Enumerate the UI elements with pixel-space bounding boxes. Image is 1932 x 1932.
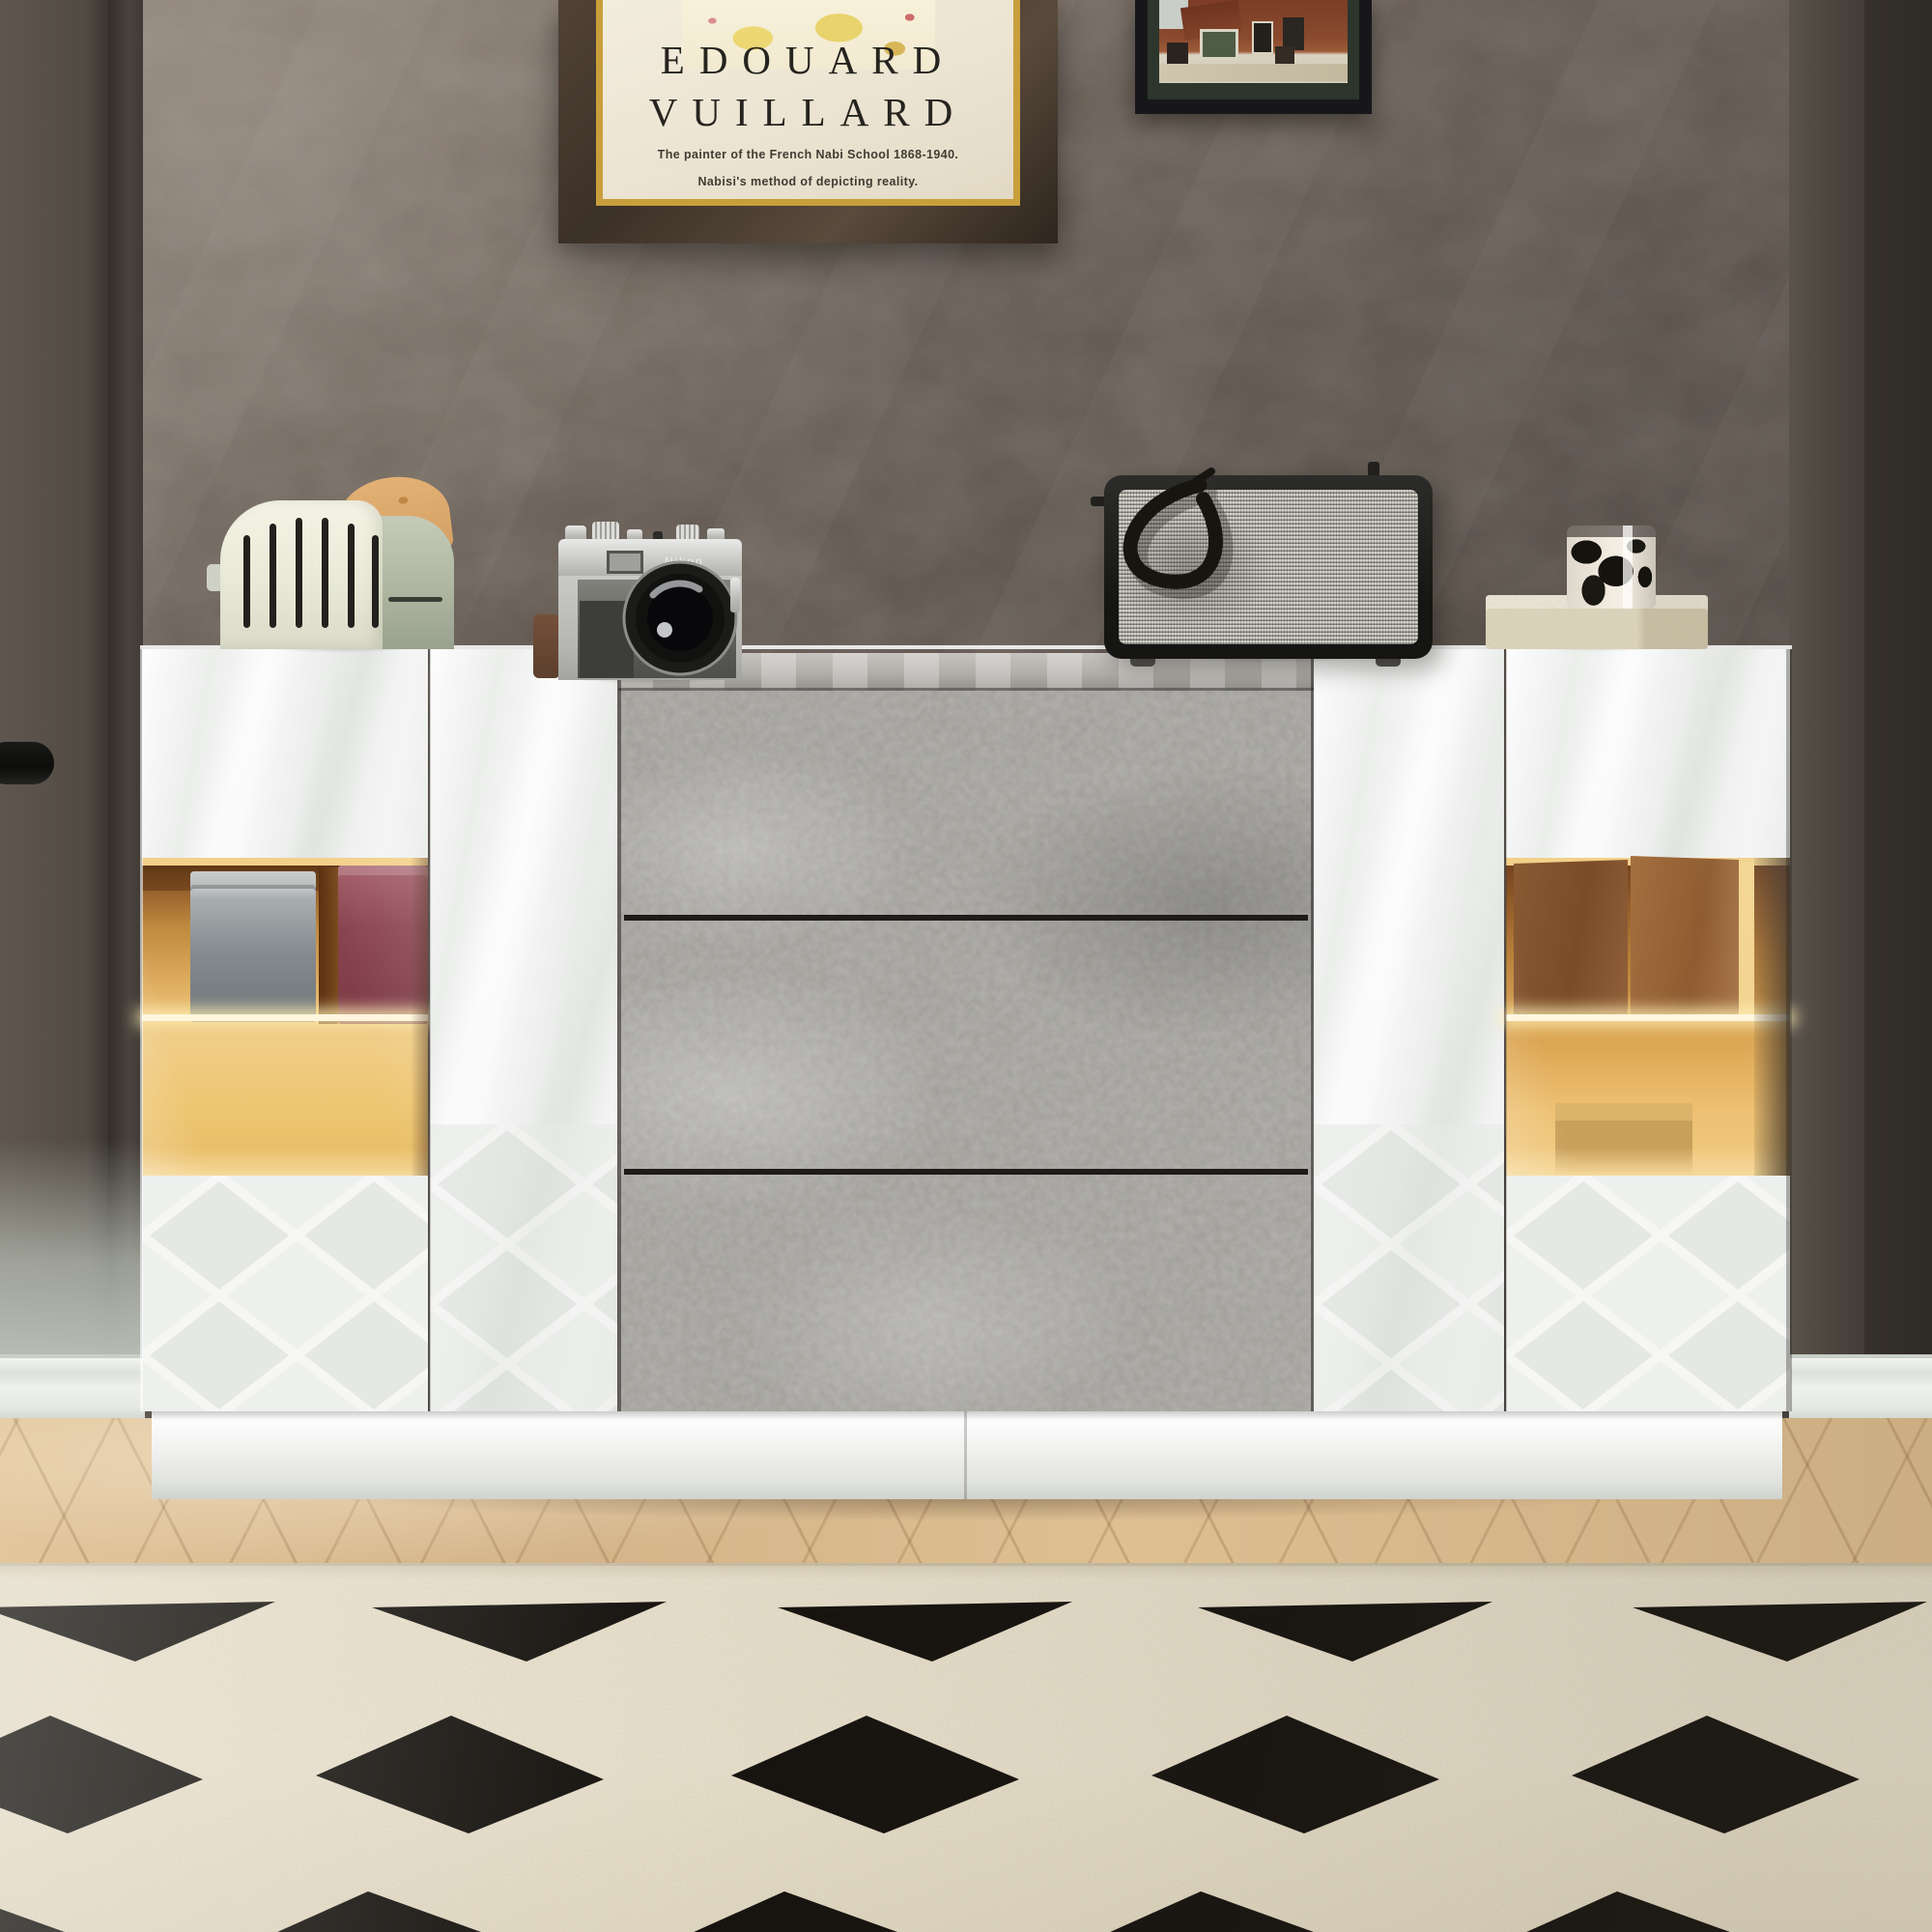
door-seam-right — [1504, 649, 1507, 1411]
concrete-shading — [618, 688, 1314, 1411]
right-glass-display — [1506, 858, 1790, 1176]
drawer-gap-2 — [624, 1169, 1308, 1175]
toaster-side-slot — [388, 597, 442, 602]
toaster-slit — [348, 524, 355, 628]
door-reflection — [142, 649, 428, 858]
toaster-slit — [270, 524, 276, 628]
camera-lens — [614, 556, 746, 684]
right-tall-door-diamond — [1314, 1124, 1504, 1411]
plinth-top-shadow — [152, 1411, 1782, 1420]
glass-reflection — [1506, 858, 1790, 1176]
toaster-slit — [243, 535, 250, 628]
toaster-slit — [296, 518, 302, 628]
right-top-door — [1506, 649, 1790, 858]
cabinet-plinth — [152, 1411, 1782, 1499]
center-left-edge — [618, 653, 621, 1411]
left-glass-display — [142, 858, 428, 1176]
left-bottom-diamond-door — [142, 1176, 428, 1411]
camera-latch — [730, 578, 740, 612]
living-room-scene: EDOUARD VUILLARD The painter of the Fren… — [0, 0, 1932, 1932]
right-bottom-diamond-door — [1506, 1176, 1790, 1411]
toaster-slit — [322, 518, 328, 628]
rug-shading — [0, 1563, 1932, 1932]
toaster-body — [220, 500, 383, 649]
left-tall-door-diamond — [430, 1124, 617, 1411]
cup-highlight — [1623, 526, 1633, 609]
drawer-gap-1 — [624, 915, 1308, 921]
door-seam-left — [428, 649, 431, 1411]
left-top-door — [142, 649, 428, 858]
cup-rim — [1567, 526, 1656, 537]
patterned-cup — [1567, 526, 1656, 609]
toaster-slit — [372, 535, 379, 628]
door-reflection — [1506, 649, 1790, 858]
plinth-seam — [964, 1411, 967, 1499]
cabinet-right-edge — [1786, 649, 1792, 1411]
speaker-coiled-cord — [1072, 454, 1265, 609]
cabinet-left-edge — [140, 649, 143, 1411]
camera-dial — [592, 522, 619, 541]
glass-reflection — [142, 858, 428, 1176]
camera-case — [533, 614, 560, 678]
toaster-side — [375, 516, 454, 649]
